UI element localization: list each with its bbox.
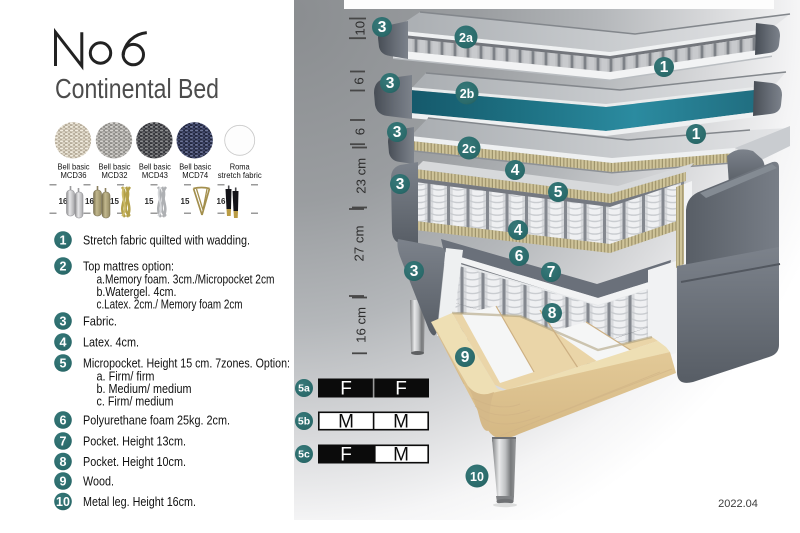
svg-text:2c: 2c <box>462 142 476 156</box>
svg-text:M: M <box>338 412 354 433</box>
svg-text:Polyurethane foam 25kg. 2cm.: Polyurethane foam 25kg. 2cm. <box>83 413 230 428</box>
svg-text:4: 4 <box>60 336 67 350</box>
svg-text:9: 9 <box>60 475 67 489</box>
svg-text:3: 3 <box>393 124 402 141</box>
svg-text:M: M <box>393 412 409 433</box>
svg-text:M: M <box>393 445 409 466</box>
svg-text:6: 6 <box>351 77 366 84</box>
svg-text:F: F <box>340 445 352 466</box>
svg-text:2a: 2a <box>459 31 474 45</box>
svg-text:F: F <box>395 379 407 400</box>
svg-text:1: 1 <box>60 234 67 248</box>
svg-text:Latex. 4cm.: Latex. 4cm. <box>83 335 139 350</box>
svg-text:15: 15 <box>145 197 154 206</box>
svg-text:c. Firm/ medium: c. Firm/ medium <box>97 394 174 409</box>
svg-text:10: 10 <box>470 470 484 484</box>
svg-text:Continental Bed: Continental Bed <box>55 73 219 104</box>
svg-text:Pocket. Height 10cm.: Pocket. Height 10cm. <box>83 454 186 469</box>
svg-text:MCD36: MCD36 <box>61 171 87 180</box>
svg-text:27 cm: 27 cm <box>351 226 366 262</box>
svg-text:MCD32: MCD32 <box>102 171 128 180</box>
svg-text:4: 4 <box>511 162 520 179</box>
svg-text:6: 6 <box>515 248 524 265</box>
svg-text:Wood.: Wood. <box>83 474 114 489</box>
svg-text:5a: 5a <box>298 383 310 395</box>
svg-text:stretch fabric: stretch fabric <box>218 171 262 180</box>
svg-text:16: 16 <box>217 197 226 206</box>
svg-text:2b: 2b <box>460 87 475 101</box>
svg-text:6: 6 <box>352 128 367 135</box>
svg-text:3: 3 <box>410 263 419 280</box>
svg-text:15: 15 <box>110 197 119 206</box>
svg-text:Pocket. Height 13cm.: Pocket. Height 13cm. <box>83 434 186 449</box>
svg-text:F: F <box>340 379 352 400</box>
svg-text:7: 7 <box>547 264 556 281</box>
svg-text:16 cm: 16 cm <box>353 307 368 343</box>
svg-text:1: 1 <box>660 59 669 76</box>
svg-text:3: 3 <box>60 315 67 329</box>
svg-text:9: 9 <box>461 349 470 366</box>
svg-text:6: 6 <box>60 414 67 428</box>
svg-text:Stretch fabric quilted with wa: Stretch fabric quilted with wadding. <box>83 233 250 248</box>
svg-text:5c: 5c <box>298 449 310 461</box>
svg-text:8: 8 <box>60 455 67 469</box>
svg-text:5: 5 <box>60 357 67 371</box>
svg-text:3: 3 <box>396 176 405 193</box>
svg-text:3: 3 <box>386 75 395 92</box>
svg-text:2022.04: 2022.04 <box>718 498 758 510</box>
svg-text:10: 10 <box>56 495 70 509</box>
svg-text:15: 15 <box>181 197 190 206</box>
svg-text:Fabric.: Fabric. <box>83 314 117 329</box>
svg-text:4: 4 <box>514 222 523 239</box>
svg-text:16: 16 <box>85 197 94 206</box>
svg-text:c.Latex. 2cm./ Memory foam 2cm: c.Latex. 2cm./ Memory foam 2cm <box>97 297 243 312</box>
svg-text:2: 2 <box>60 260 67 274</box>
svg-text:Metal leg. Height 16cm.: Metal leg. Height 16cm. <box>83 494 196 509</box>
svg-text:5b: 5b <box>298 416 310 428</box>
svg-text:3: 3 <box>378 19 387 36</box>
svg-text:23 cm: 23 cm <box>353 158 368 194</box>
svg-text:10: 10 <box>352 21 367 36</box>
svg-text:MCD43: MCD43 <box>142 171 168 180</box>
svg-text:7: 7 <box>60 435 67 449</box>
svg-text:8: 8 <box>548 305 557 322</box>
svg-text:5: 5 <box>554 184 563 201</box>
svg-text:MCD74: MCD74 <box>182 171 208 180</box>
svg-text:1: 1 <box>692 126 701 143</box>
